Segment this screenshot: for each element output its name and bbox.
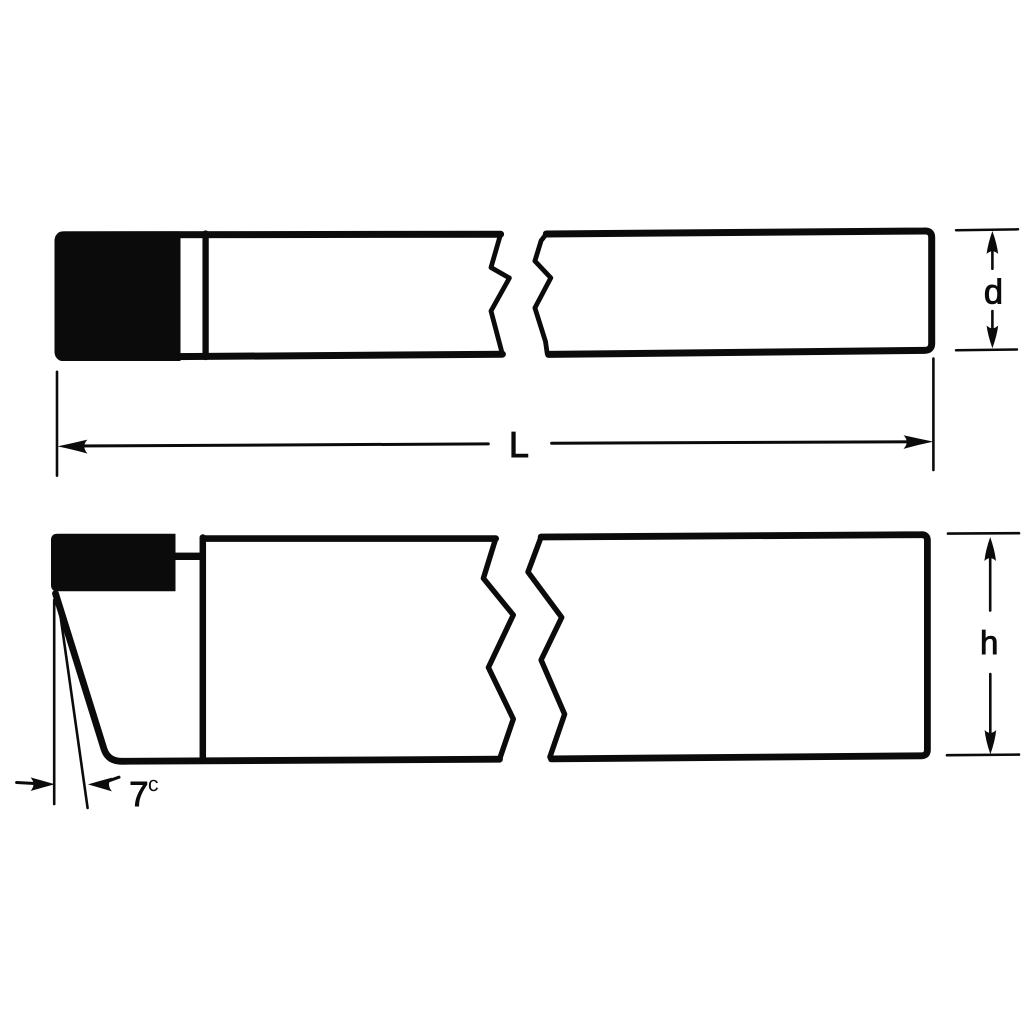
svg-text:d: d [984, 274, 1003, 312]
svg-text:h: h [980, 624, 998, 661]
svg-text:L: L [509, 424, 529, 465]
svg-text:7: 7 [129, 775, 148, 814]
svg-text:c: c [148, 773, 159, 796]
